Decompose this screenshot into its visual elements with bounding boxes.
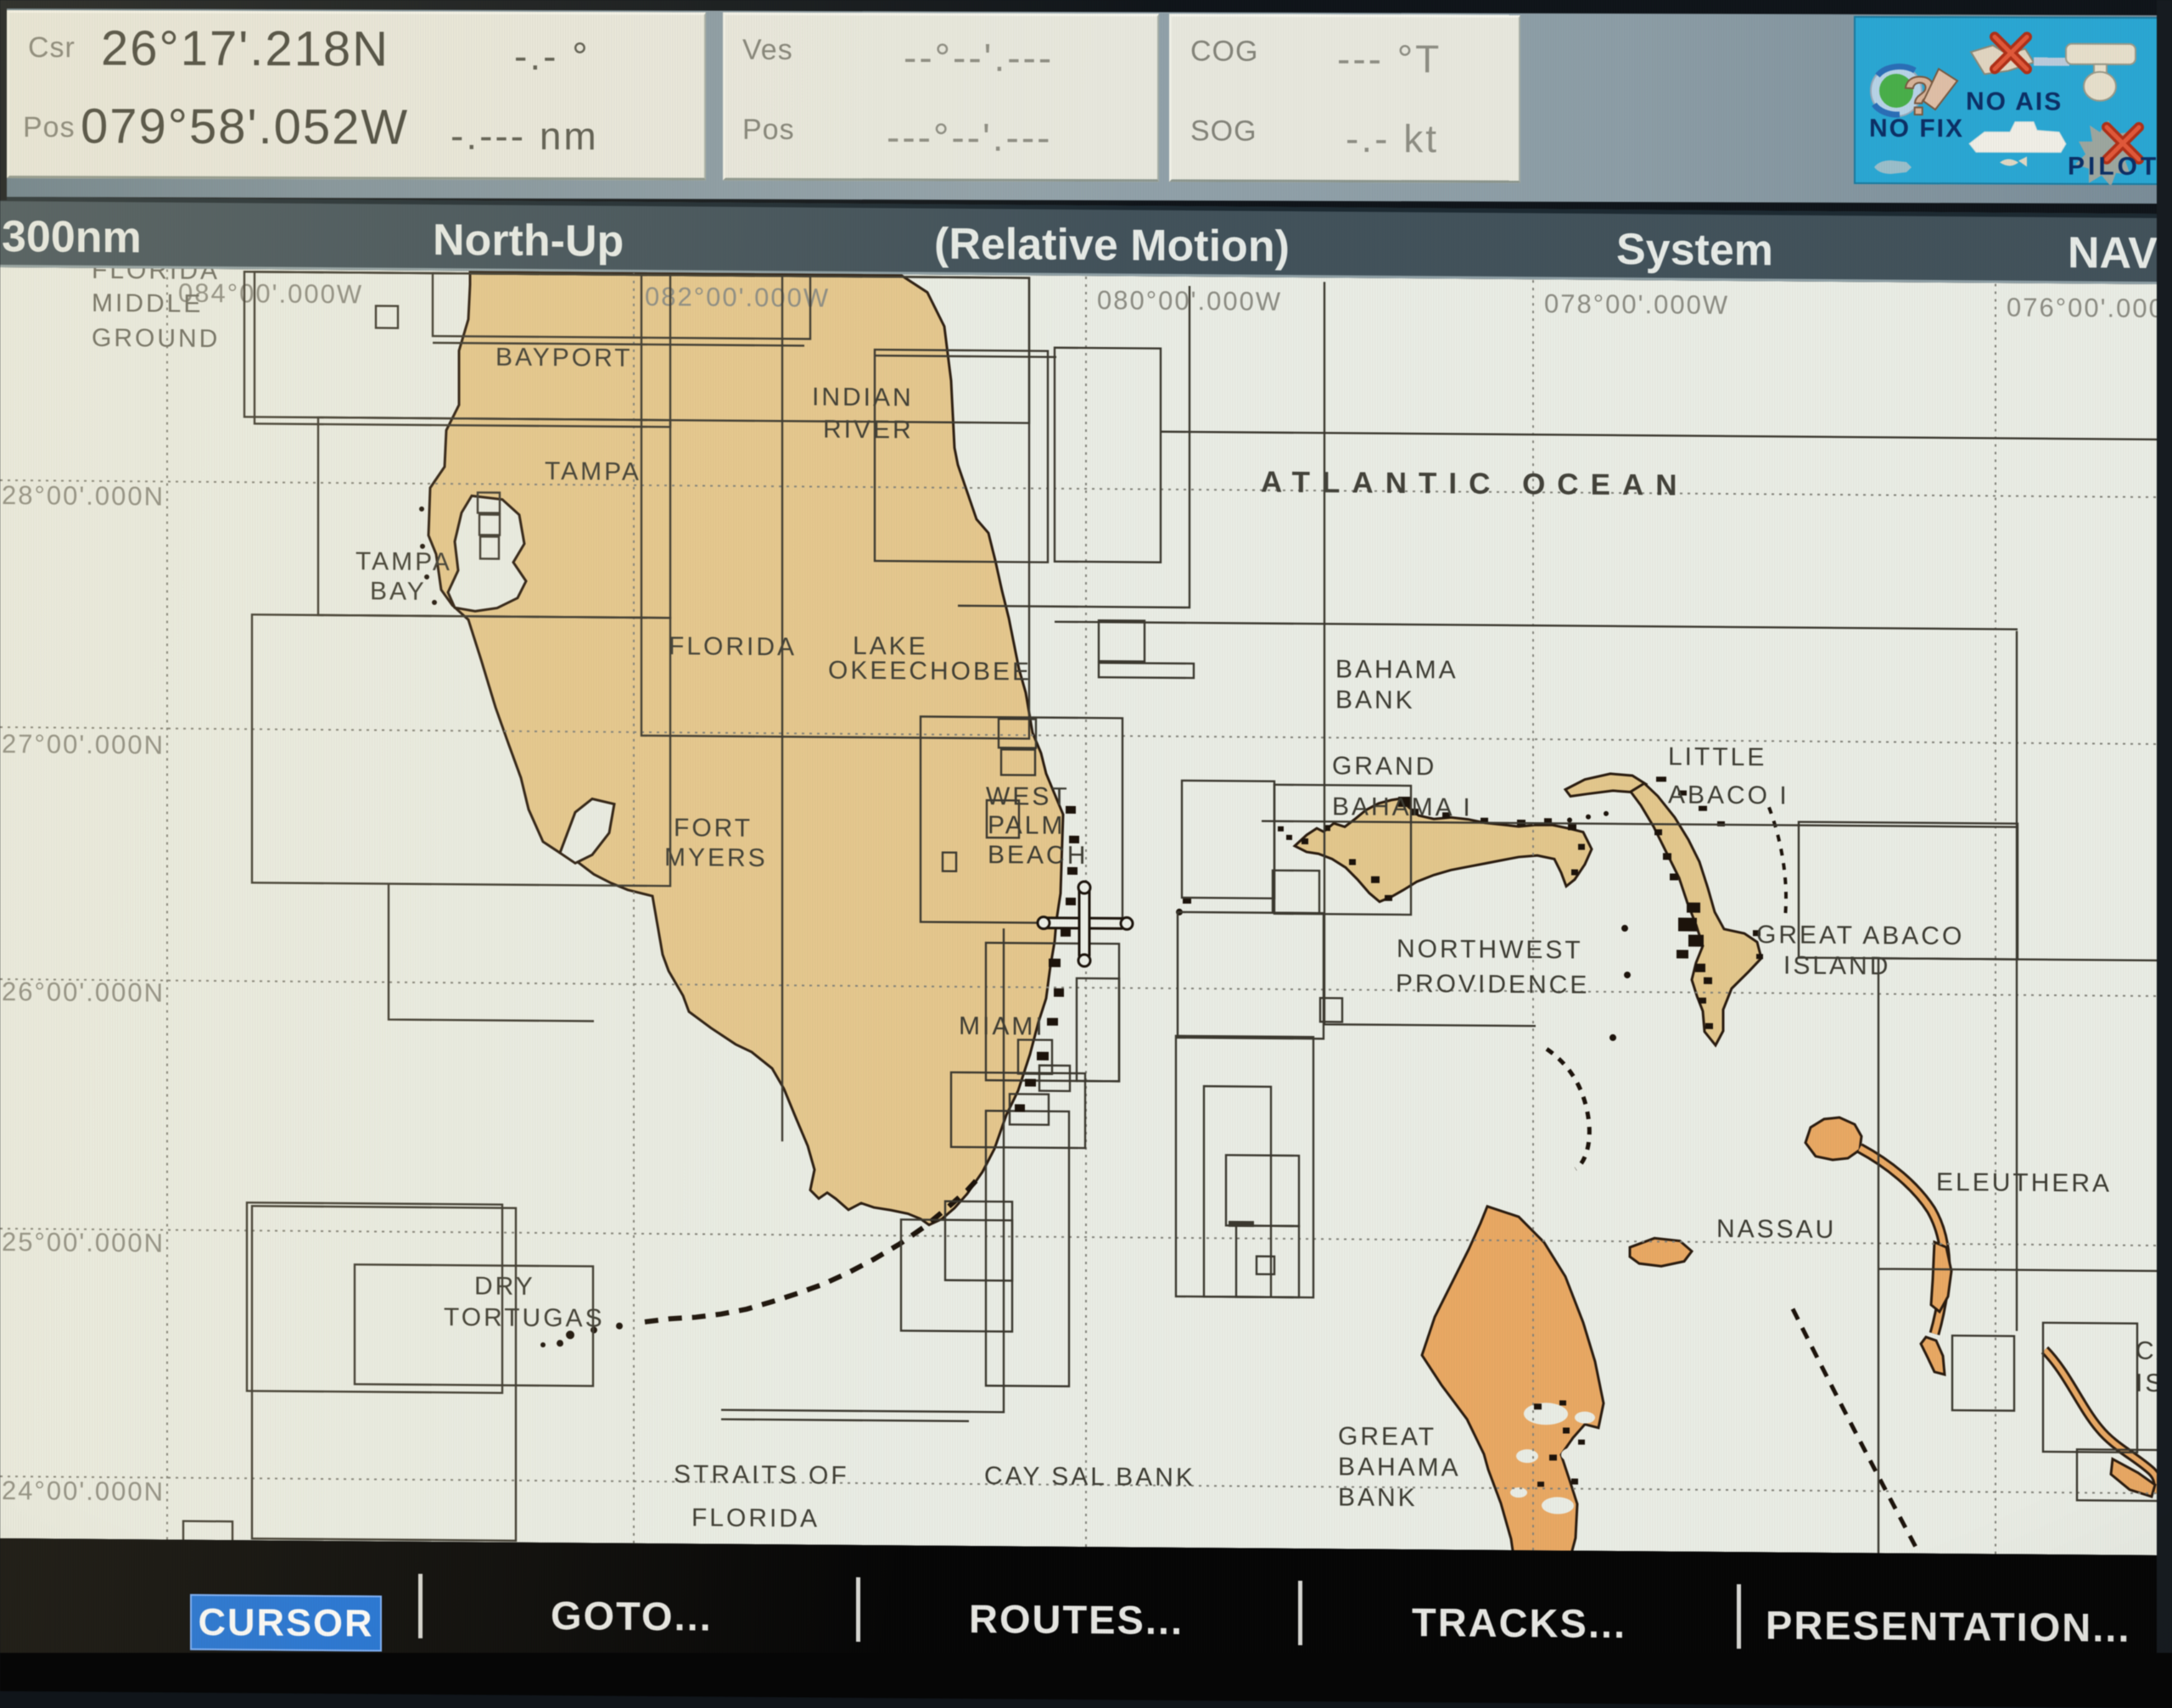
svg-text:FORT: FORT [674, 814, 753, 843]
svg-text:GREAT ABACO: GREAT ABACO [1756, 921, 1964, 950]
svg-text:OKEECHOBEE: OKEECHOBEE [828, 657, 1032, 686]
svg-text:INDIAN: INDIAN [812, 384, 914, 412]
svg-text:28°00'.000N: 28°00'.000N [2, 480, 165, 512]
svg-text:NASSAU: NASSAU [1716, 1215, 1836, 1244]
svg-text:FLORIDA: FLORIDA [92, 267, 220, 285]
svg-text:27°00'.000N: 27°00'.000N [2, 729, 165, 760]
svg-text:RIVER: RIVER [823, 416, 914, 445]
svg-text:TAMPA: TAMPA [355, 547, 452, 576]
svg-text:078°00'.000W: 078°00'.000W [1544, 288, 1729, 320]
svg-text:25°00'.000N: 25°00'.000N [2, 1227, 165, 1258]
svg-text:CAY SAL BANK: CAY SAL BANK [984, 1462, 1195, 1492]
svg-text:BAHAMA: BAHAMA [1335, 655, 1458, 684]
svg-text:MIDDLE: MIDDLE [92, 289, 203, 318]
svg-text:ATLANTIC OCEAN: ATLANTIC OCEAN [1261, 466, 1688, 502]
svg-text:PALM: PALM [988, 811, 1065, 840]
svg-text:MYERS: MYERS [664, 843, 768, 872]
svg-text:PILOT: PILOT [2068, 153, 2159, 181]
svg-text:MIAMI: MIAMI [959, 1012, 1045, 1041]
svg-text:BAHAMA: BAHAMA [1338, 1453, 1461, 1481]
svg-text:BANK: BANK [1338, 1483, 1418, 1512]
svg-text:DRY: DRY [474, 1272, 535, 1301]
svg-text:LITTLE: LITTLE [1668, 742, 1766, 771]
svg-text:BAY: BAY [370, 577, 427, 606]
svg-text:ABACO I: ABACO I [1668, 781, 1789, 809]
svg-text:PROVIDENCE: PROVIDENCE [1396, 970, 1589, 1000]
svg-text:BANK: BANK [1335, 686, 1415, 714]
svg-text:24°00'.000N: 24°00'.000N [2, 1476, 165, 1507]
svg-text:GRAND: GRAND [1332, 752, 1436, 781]
svg-text:FLORIDA: FLORIDA [691, 1504, 820, 1532]
svg-text:TAMPA: TAMPA [545, 457, 641, 486]
svg-text:FLORIDA: FLORIDA [669, 632, 797, 661]
svg-text:ELEUTHERA: ELEUTHERA [1936, 1168, 2112, 1198]
svg-text:WEST: WEST [986, 782, 1070, 811]
svg-text:ISLAND: ISLAND [1783, 952, 1890, 981]
svg-text:GROUND: GROUND [92, 324, 220, 353]
svg-text:076°00'.000: 076°00'.000 [2007, 293, 2165, 323]
svg-text:STRAITS OF: STRAITS OF [674, 1460, 849, 1490]
svg-text:NORTHWEST: NORTHWEST [1397, 935, 1583, 965]
svg-text:082°00'.000W: 082°00'.000W [645, 282, 830, 313]
svg-text:TORTUGAS: TORTUGAS [444, 1303, 605, 1332]
svg-text:BAHAMA I: BAHAMA I [1332, 792, 1473, 821]
svg-text:NO AIS: NO AIS [1966, 87, 2063, 115]
svg-text:GREAT: GREAT [1338, 1422, 1436, 1451]
svg-text:26°00'.000N: 26°00'.000N [2, 977, 165, 1008]
svg-text:NO FIX: NO FIX [1869, 115, 1964, 143]
svg-text:BAYPORT: BAYPORT [495, 344, 633, 372]
svg-text:BEACH: BEACH [988, 841, 1088, 870]
